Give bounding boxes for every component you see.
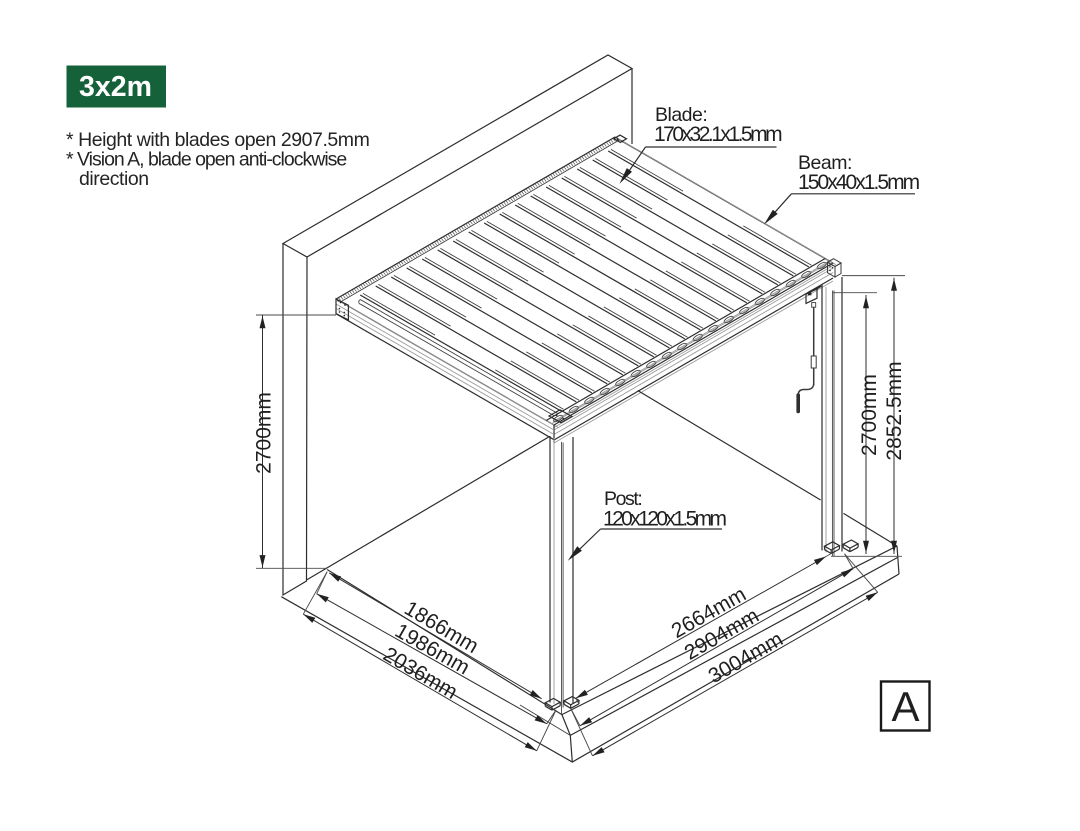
svg-text:A: A [891,683,919,730]
svg-text:2852.5mm: 2852.5mm [883,361,906,460]
svg-text:170x32.1x1.5mm: 170x32.1x1.5mm [654,123,782,146]
svg-text:direction: direction [79,168,149,190]
svg-text:2700mm: 2700mm [858,374,881,456]
svg-text:2700mm: 2700mm [252,392,275,474]
svg-text:120x120x1.5mm: 120x120x1.5mm [603,508,727,531]
svg-text:3x2m: 3x2m [79,71,152,103]
svg-text:150x40x1.5mm: 150x40x1.5mm [798,171,920,194]
